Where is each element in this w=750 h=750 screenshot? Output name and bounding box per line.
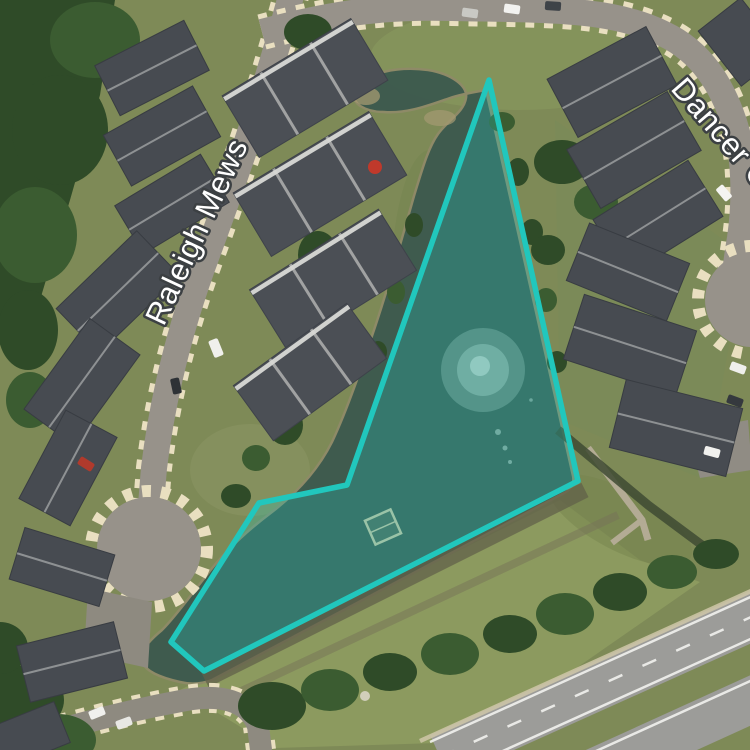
red-umbrella [368,160,382,174]
map-viewport: Raleigh Mews Dancer C [0,0,750,750]
cul-de-sac [97,497,201,601]
utility-pad [360,691,370,701]
sand-shore [424,110,456,126]
map-canvas[interactable]: Raleigh Mews Dancer C [0,0,750,750]
